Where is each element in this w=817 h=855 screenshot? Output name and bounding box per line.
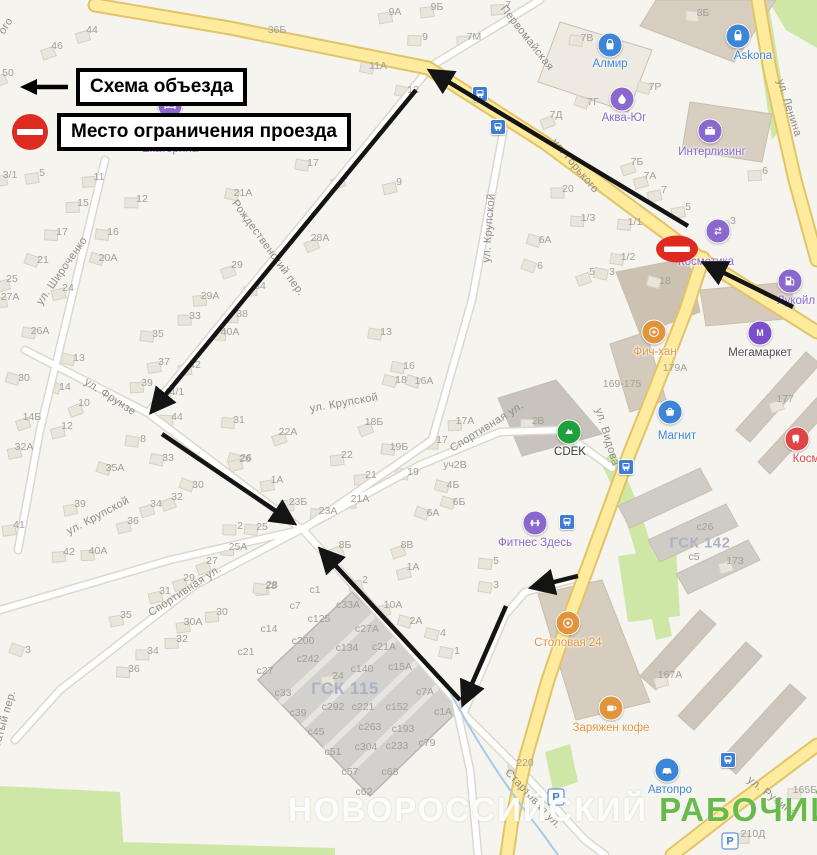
house-number: с140 xyxy=(351,663,374,675)
no-entry-icon xyxy=(12,114,48,150)
house-number: 18Б xyxy=(365,416,384,428)
area-label: ГСК 115 xyxy=(311,679,379,699)
house-number: 5 xyxy=(39,167,45,179)
house-number: 29 xyxy=(183,572,195,584)
house-number: 8Б xyxy=(697,7,710,19)
house-number: 20 xyxy=(562,183,574,195)
house-number: с7 xyxy=(289,600,300,612)
house-number: 14Б xyxy=(23,411,42,423)
house-number: 32 xyxy=(176,633,188,645)
poi-label[interactable]: Косметика xyxy=(678,256,734,268)
street-label: Рождественский пер. xyxy=(229,198,307,299)
house-number: с68 xyxy=(382,766,399,778)
house-number: с79 xyxy=(419,737,436,749)
house-number: 18 xyxy=(659,275,671,287)
house-number: 39 xyxy=(74,498,86,510)
house-number: 34 xyxy=(147,645,159,657)
house-number: 16 xyxy=(107,226,119,238)
house-number: 24 xyxy=(62,282,74,294)
house-number: с200 xyxy=(292,635,315,647)
street-label: ого xyxy=(0,16,16,37)
house-number: 35 xyxy=(152,328,164,340)
street-label: ул. Широченко xyxy=(34,235,90,308)
bus-stop-icon[interactable] xyxy=(618,459,634,475)
house-number: 2 xyxy=(237,520,243,532)
house-number: уч2В xyxy=(443,459,467,471)
house-number: с152 xyxy=(386,701,409,713)
house-number: 169-175 xyxy=(603,378,642,390)
house-number: 1/1 xyxy=(628,216,643,228)
poi-label[interactable]: Алмир xyxy=(592,58,627,70)
street-label: Спортивная ул. xyxy=(448,400,526,455)
street-label: Горбатый пер. xyxy=(0,689,19,767)
house-number: 21 xyxy=(365,469,377,481)
house-number: 7 xyxy=(505,0,511,11)
legend-restriction-label: Место ограничения проезда xyxy=(71,121,337,142)
street-label: Первомайская xyxy=(498,3,556,73)
house-number: с33А xyxy=(336,599,360,611)
house-number: 12 xyxy=(407,84,419,96)
house-number: 23А xyxy=(319,505,338,517)
house-number: с14 xyxy=(261,623,278,635)
house-number: 179А xyxy=(663,362,688,374)
house-number: 44/1 xyxy=(164,386,184,398)
house-number: 6Б xyxy=(453,496,466,508)
street-label: ул. Видова xyxy=(593,407,622,468)
house-number: 36 xyxy=(128,663,140,675)
house-number: 9А xyxy=(389,6,402,18)
house-number: с134 xyxy=(336,642,359,654)
house-number: 4 xyxy=(440,627,446,639)
svg-text:М: М xyxy=(756,328,763,338)
detour-arrow-icon xyxy=(18,78,70,96)
house-number: с26 xyxy=(697,521,714,533)
street-label: ул. Рубина xyxy=(745,774,799,820)
house-number: 28А xyxy=(311,232,330,244)
house-number: 27 xyxy=(206,555,218,567)
cdek-icon[interactable] xyxy=(557,420,582,445)
house-number: 9 xyxy=(396,176,402,188)
street-label: ул. Крупской xyxy=(481,193,498,263)
bus-stop-icon[interactable] xyxy=(720,752,736,768)
house-number: 15 xyxy=(77,197,89,209)
house-number: с1А xyxy=(434,706,452,718)
house-number: 7Б xyxy=(631,156,644,168)
house-number: 9Б xyxy=(431,1,444,13)
house-number: 25А xyxy=(229,541,248,553)
parking-icon[interactable]: P xyxy=(548,789,565,806)
poi-label[interactable]: CDEK xyxy=(554,446,586,458)
bus-stop-icon[interactable] xyxy=(472,86,488,102)
house-number: с125 xyxy=(308,613,331,625)
house-number: 17А xyxy=(456,415,475,427)
house-number: 21А xyxy=(351,493,370,505)
house-number: 2В xyxy=(532,415,545,427)
house-number: 30 xyxy=(192,479,204,491)
house-number: 39 xyxy=(141,377,153,389)
house-number: 26А xyxy=(31,325,50,337)
house-number: 12 xyxy=(136,193,148,205)
legend-detour-box: Схема объезда xyxy=(76,68,247,106)
poi-label[interactable]: Автопро xyxy=(648,784,692,796)
tooth-icon[interactable] xyxy=(785,427,810,452)
house-number: 10 xyxy=(78,397,90,409)
house-number: 1А xyxy=(407,561,420,573)
house-number: 25 xyxy=(6,273,18,285)
house-number: 1 xyxy=(454,645,460,657)
house-number: 41 xyxy=(13,519,25,531)
house-number: 3/1 xyxy=(3,169,18,181)
house-number: 27А xyxy=(1,291,20,303)
house-number: 30 xyxy=(216,606,228,618)
house-number: 6 xyxy=(762,165,768,177)
house-number: 34 xyxy=(150,498,162,510)
drop-icon[interactable] xyxy=(610,87,635,112)
house-number: 7Г xyxy=(587,96,599,108)
bag-icon[interactable] xyxy=(726,24,751,49)
house-number: 37 xyxy=(158,356,170,368)
house-number: 34 xyxy=(254,280,266,292)
coffee-icon[interactable] xyxy=(599,696,624,721)
house-number: 13 xyxy=(380,326,392,338)
house-number: 9 xyxy=(422,31,428,43)
house-number: 2А xyxy=(410,615,423,627)
house-number: 18 xyxy=(395,374,407,386)
house-number: 21 xyxy=(37,254,49,266)
house-number: 7М xyxy=(467,31,482,43)
house-number: 3 xyxy=(493,579,499,591)
house-number: 44 xyxy=(86,24,98,36)
legend-restriction-box: Место ограничения проезда xyxy=(57,113,351,151)
house-number: 36Б xyxy=(268,24,287,36)
house-number: 4Б xyxy=(447,479,460,491)
house-number: 36 xyxy=(127,515,139,527)
poi-label[interactable]: Лукойл xyxy=(777,295,815,307)
house-number: с62 xyxy=(356,786,373,798)
house-number: 16 xyxy=(403,360,415,372)
house-number: 17 xyxy=(307,157,319,169)
house-number: с15А xyxy=(388,661,412,673)
house-number: с221 xyxy=(352,701,375,713)
street-label: ул. Крупской xyxy=(309,391,379,415)
map-viewport: Первомайскаяул. Горькогоул. Ленинаул. Ви… xyxy=(0,0,817,855)
house-number: 22А xyxy=(279,426,298,438)
house-number: 20А xyxy=(99,252,118,264)
house-number: 31 xyxy=(233,414,245,426)
house-number: 165Б xyxy=(793,784,817,796)
house-number: 35А xyxy=(106,462,125,474)
house-number: 14 xyxy=(59,381,71,393)
house-number: 33 xyxy=(189,310,201,322)
house-number: 16А xyxy=(415,375,434,387)
house-number: 7Д xyxy=(550,109,563,121)
house-number: с51 xyxy=(325,746,342,758)
house-number: с33 xyxy=(275,687,292,699)
house-number: с45 xyxy=(308,726,325,738)
house-number: 19 xyxy=(407,466,419,478)
house-number: с39 xyxy=(290,707,307,719)
house-number: 32А xyxy=(15,441,34,453)
house-number: 220 xyxy=(516,757,534,769)
house-number: 42 xyxy=(189,359,201,371)
house-number: 40А xyxy=(221,326,240,338)
house-number: с21А xyxy=(372,641,396,653)
house-number: с27А xyxy=(355,623,379,635)
bag-icon[interactable] xyxy=(598,33,623,58)
poi-label[interactable]: Заряжен кофе xyxy=(573,722,650,734)
house-number: 5 xyxy=(589,266,595,278)
house-number: с21 xyxy=(238,646,255,658)
house-number: 29А xyxy=(201,290,220,302)
house-number: 10А xyxy=(384,599,403,611)
house-number: 7 xyxy=(344,170,350,182)
house-number: 7А xyxy=(644,170,657,182)
house-number: 5 xyxy=(493,555,499,567)
house-number: 11А xyxy=(369,60,387,72)
house-number: 35 xyxy=(120,609,132,621)
house-number: 50 xyxy=(2,67,14,79)
house-number: 173 xyxy=(726,555,744,567)
house-number: с1 xyxy=(309,584,320,596)
house-number: с27 xyxy=(257,665,274,677)
house-number: 31 xyxy=(159,585,171,597)
bus-stop-icon[interactable] xyxy=(490,119,506,135)
cart-icon[interactable] xyxy=(658,400,683,425)
house-number: 8 xyxy=(140,433,146,445)
house-number: 1/2 xyxy=(621,251,636,263)
house-number: 8Б xyxy=(339,539,352,551)
house-number: 13 xyxy=(73,352,85,364)
house-number: 7 xyxy=(661,184,667,196)
house-number: 46 xyxy=(51,40,63,52)
bus-stop-icon[interactable] xyxy=(559,514,575,530)
house-number: 6 xyxy=(537,260,543,272)
house-number: с233 xyxy=(386,740,409,752)
house-number: с7А xyxy=(416,686,434,698)
house-number: 1А xyxy=(271,474,284,486)
swap-icon[interactable] xyxy=(706,219,731,244)
food-icon[interactable] xyxy=(642,320,667,345)
house-number: 1/3 xyxy=(581,212,596,224)
fuel-icon[interactable] xyxy=(778,269,803,294)
house-number: 210Д xyxy=(741,828,766,840)
house-number: 12 xyxy=(61,420,73,432)
house-number: 177 xyxy=(776,393,794,405)
house-number: с292 xyxy=(322,701,345,713)
house-number: с304 xyxy=(355,741,378,753)
house-number: 7Р xyxy=(649,81,662,93)
house-number: с5 xyxy=(688,551,699,563)
house-number: 25 xyxy=(256,521,268,533)
poi-label[interactable]: Столовая 24 xyxy=(534,637,601,649)
house-number: 8В xyxy=(401,539,414,551)
m-icon[interactable]: М xyxy=(748,321,773,346)
house-number: 5 xyxy=(685,201,691,213)
house-number: 3 xyxy=(609,266,615,278)
dumbbell-icon[interactable] xyxy=(523,511,548,536)
poi-label[interactable]: Магнит xyxy=(658,430,696,442)
street-label: ул. Ленина xyxy=(774,78,804,138)
house-number: 30А xyxy=(184,616,203,628)
poi-label[interactable]: Askona xyxy=(734,50,772,62)
house-number: 22 xyxy=(341,449,353,461)
case-icon[interactable] xyxy=(698,119,723,144)
house-number: 3 xyxy=(25,644,31,656)
poi-label[interactable]: Фитнес Здесь xyxy=(498,537,572,549)
parking-icon[interactable]: P xyxy=(722,833,739,850)
poi-label[interactable]: Мегамаркет xyxy=(728,347,792,359)
food-icon[interactable] xyxy=(556,611,581,636)
house-number: 19Б xyxy=(390,441,409,453)
house-number: с242 xyxy=(297,653,320,665)
house-number: 38 xyxy=(236,308,248,320)
house-number: 167А xyxy=(658,669,683,681)
house-number: 6А xyxy=(427,507,440,519)
street-label: ул. Фрунзе xyxy=(82,376,138,418)
house-number: 17 xyxy=(56,226,68,238)
house-number: 17 xyxy=(436,434,448,446)
poi-label[interactable]: Аква-Юг xyxy=(602,112,647,124)
poi-label[interactable]: Интерлизинг xyxy=(678,146,746,158)
house-number: с263 xyxy=(359,721,382,733)
house-number: 33 xyxy=(162,452,174,464)
car-icon[interactable] xyxy=(655,758,680,783)
house-number: с193 xyxy=(392,723,415,735)
legend-detour-label: Схема объезда xyxy=(90,76,233,97)
poi-label[interactable]: Фич-хан xyxy=(633,346,676,358)
house-number: 11 xyxy=(94,171,105,183)
house-number: 26 xyxy=(239,453,251,465)
area-label: ГСК 142 xyxy=(670,535,731,552)
house-number: 42 xyxy=(63,546,75,558)
poi-label[interactable]: Косм xyxy=(793,453,817,465)
street-label: ул. Горького xyxy=(549,137,601,196)
house-number: 3 xyxy=(730,215,736,227)
house-number: 40А xyxy=(89,545,108,557)
house-number: 32 xyxy=(171,491,183,503)
house-number: 44 xyxy=(171,411,183,423)
house-number: 21А xyxy=(234,187,253,199)
house-number: 23Б xyxy=(289,496,308,508)
house-number: 30 xyxy=(18,372,30,384)
house-number: с57 xyxy=(342,766,359,778)
house-number: 28 xyxy=(265,580,277,592)
house-number: 6А xyxy=(539,234,552,246)
house-number: 7В xyxy=(581,32,594,44)
house-number: 2 xyxy=(362,574,368,586)
house-number: 29 xyxy=(231,259,243,271)
